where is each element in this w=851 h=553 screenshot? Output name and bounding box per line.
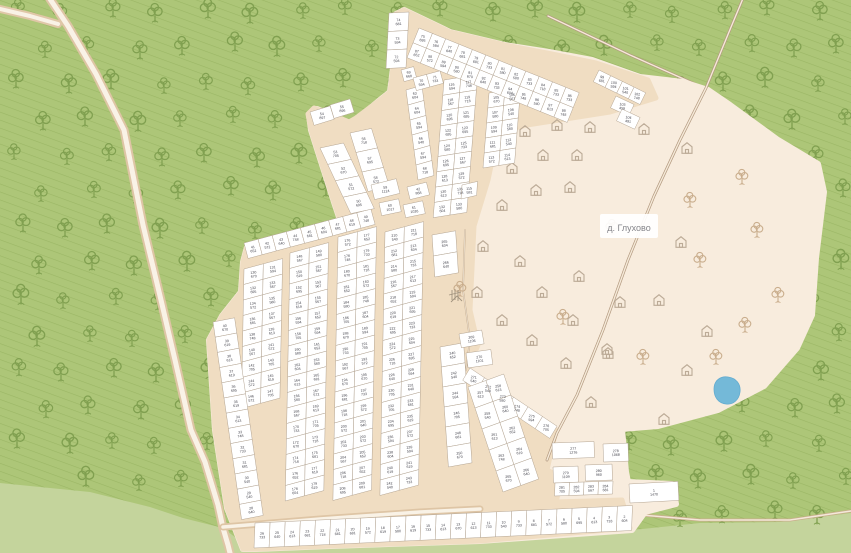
- svg-text:137567: 137567: [269, 312, 276, 320]
- svg-text:174718: 174718: [292, 456, 299, 464]
- svg-text:204567: 204567: [340, 455, 347, 463]
- svg-text:151567: 151567: [315, 265, 322, 273]
- svg-text:205652: 205652: [359, 450, 366, 458]
- svg-text:101540: 101540: [622, 86, 629, 94]
- svg-text:230705: 230705: [388, 388, 395, 396]
- svg-text:178604: 178604: [292, 487, 299, 495]
- svg-text:153567: 153567: [315, 280, 322, 288]
- svg-text:179733: 179733: [363, 249, 370, 257]
- svg-text:208695: 208695: [339, 486, 346, 494]
- svg-text:266640: 266640: [523, 468, 530, 476]
- svg-text:210540: 210540: [391, 233, 398, 241]
- svg-text:180670: 180670: [344, 269, 351, 277]
- svg-text:260640: 260640: [502, 405, 509, 413]
- svg-text:120695: 120695: [446, 113, 453, 121]
- svg-text:171705: 171705: [312, 420, 319, 428]
- svg-text:227695: 227695: [408, 352, 415, 360]
- svg-text:119718: 119718: [464, 95, 471, 103]
- svg-text:162604: 162604: [294, 363, 301, 371]
- svg-text:139613: 139613: [268, 327, 275, 335]
- svg-text:188670: 188670: [342, 331, 349, 339]
- svg-text:259540: 259540: [484, 412, 491, 420]
- svg-text:192567: 192567: [342, 362, 349, 370]
- svg-text:240619: 240619: [387, 466, 394, 474]
- svg-text:182652: 182652: [343, 285, 350, 293]
- svg-text:274748: 274748: [514, 404, 521, 412]
- svg-text:217613: 217613: [410, 275, 417, 283]
- svg-text:136681: 136681: [249, 317, 256, 325]
- svg-text:164613: 164613: [294, 378, 301, 386]
- svg-text:212681: 212681: [391, 249, 398, 257]
- svg-text:147705: 147705: [267, 389, 274, 397]
- svg-text:250670: 250670: [456, 451, 463, 459]
- svg-text:206718: 206718: [340, 471, 347, 479]
- svg-text:266640: 266640: [443, 261, 450, 269]
- svg-text:282594: 282594: [573, 485, 579, 493]
- svg-text:112540: 112540: [505, 138, 512, 146]
- svg-text:262652: 262652: [509, 426, 516, 434]
- svg-text:257613: 257613: [477, 391, 484, 399]
- svg-text:191705: 191705: [361, 342, 368, 350]
- svg-text:110580: 110580: [506, 123, 513, 131]
- svg-text:105670: 105670: [493, 95, 500, 103]
- svg-text:152695: 152695: [296, 285, 303, 293]
- svg-text:178748: 178748: [344, 254, 351, 262]
- svg-text:127567: 127567: [459, 156, 466, 164]
- svg-text:179619: 179619: [311, 482, 318, 490]
- svg-text:117748: 117748: [465, 80, 472, 88]
- svg-text:209681: 209681: [359, 481, 366, 489]
- svg-text:246705: 246705: [453, 411, 460, 419]
- svg-text:264619: 264619: [516, 447, 523, 455]
- svg-text:146572: 146572: [248, 394, 255, 402]
- svg-text:157652: 157652: [314, 311, 321, 319]
- svg-text:229594: 229594: [408, 368, 415, 376]
- svg-text:135580: 135580: [269, 296, 276, 304]
- svg-text:107580: 107580: [492, 110, 499, 118]
- svg-text:240652: 240652: [449, 351, 456, 359]
- svg-text:200572: 200572: [341, 424, 348, 432]
- svg-text:271540: 271540: [470, 375, 477, 383]
- svg-text:150619: 150619: [296, 270, 303, 278]
- svg-text:232705: 232705: [388, 404, 395, 412]
- svg-text:132695: 132695: [250, 286, 257, 294]
- svg-text:177619: 177619: [311, 466, 318, 474]
- svg-text:143705: 143705: [268, 358, 275, 366]
- svg-text:165681: 165681: [313, 373, 320, 381]
- svg-text:130613: 130613: [440, 190, 447, 198]
- svg-text:228640: 228640: [388, 373, 395, 381]
- svg-text:142705: 142705: [248, 363, 255, 371]
- svg-text:2791109: 2791109: [562, 471, 570, 479]
- svg-text:216567: 216567: [390, 280, 397, 288]
- svg-text:242540: 242540: [451, 371, 458, 379]
- svg-text:215733: 215733: [410, 259, 417, 267]
- svg-text:190733: 190733: [342, 347, 349, 355]
- svg-text:126695: 126695: [442, 159, 449, 167]
- svg-text:263748: 263748: [498, 454, 505, 462]
- svg-text:272540: 272540: [485, 385, 492, 393]
- svg-text:239594: 239594: [406, 445, 413, 453]
- svg-text:100594: 100594: [610, 81, 617, 89]
- svg-text:122695: 122695: [445, 128, 452, 136]
- svg-text:148567: 148567: [296, 254, 303, 262]
- svg-text:199572: 199572: [360, 404, 367, 412]
- svg-text:258613: 258613: [495, 384, 502, 392]
- svg-text:241619: 241619: [406, 461, 413, 469]
- svg-text:138748: 138748: [249, 332, 256, 340]
- svg-text:123695: 123695: [462, 126, 469, 134]
- svg-text:242540: 242540: [386, 481, 393, 489]
- svg-text:104491: 104491: [625, 115, 632, 123]
- svg-text:170733: 170733: [293, 425, 300, 433]
- svg-text:248681: 248681: [455, 431, 462, 439]
- svg-text:155567: 155567: [315, 296, 322, 304]
- svg-text:115581: 115581: [466, 186, 473, 194]
- svg-text:184580: 184580: [343, 300, 350, 308]
- svg-text:116594: 116594: [448, 83, 455, 91]
- svg-text:161652: 161652: [314, 342, 321, 350]
- svg-text:128613: 128613: [441, 174, 448, 182]
- svg-text:144572: 144572: [248, 379, 255, 387]
- svg-text:283567: 283567: [588, 485, 594, 493]
- svg-text:д. Глухово: д. Глухово: [607, 223, 650, 233]
- svg-text:198718: 198718: [341, 409, 348, 417]
- svg-text:244594: 244594: [452, 391, 459, 399]
- svg-text:159594: 159594: [314, 327, 321, 335]
- svg-text:103459: 103459: [619, 102, 626, 110]
- svg-text:276705: 276705: [543, 424, 550, 432]
- svg-text:154619: 154619: [295, 301, 302, 309]
- svg-text:173718: 173718: [312, 435, 319, 443]
- svg-text:193572: 193572: [361, 357, 368, 365]
- svg-text:233681: 233681: [407, 399, 414, 407]
- svg-text:133567: 133567: [269, 281, 276, 289]
- svg-text:185748: 185748: [362, 295, 369, 303]
- svg-text:222695: 222695: [389, 326, 396, 334]
- svg-text:176572: 176572: [344, 238, 351, 246]
- svg-text:176652: 176652: [292, 471, 299, 479]
- svg-text:121695: 121695: [463, 111, 470, 119]
- svg-text:177652: 177652: [363, 233, 370, 241]
- svg-text:219594: 219594: [409, 290, 416, 298]
- svg-text:131594: 131594: [269, 265, 276, 273]
- svg-text:243733: 243733: [406, 476, 413, 484]
- svg-text:203572: 203572: [360, 435, 367, 443]
- svg-text:133580: 133580: [456, 202, 463, 210]
- svg-text:169613: 169613: [312, 404, 319, 412]
- svg-text:2771276: 2771276: [569, 447, 577, 455]
- svg-text:202733: 202733: [340, 440, 347, 448]
- svg-text:187604: 187604: [362, 311, 369, 319]
- svg-text:234695: 234695: [388, 419, 395, 427]
- svg-text:158705: 158705: [295, 332, 302, 340]
- svg-text:281705: 281705: [559, 486, 565, 494]
- svg-text:273580: 273580: [499, 395, 506, 403]
- svg-text:226718: 226718: [389, 357, 396, 365]
- svg-text:186705: 186705: [343, 316, 350, 324]
- svg-text:141572: 141572: [268, 343, 275, 351]
- svg-text:114613: 114613: [504, 153, 511, 161]
- svg-text:183572: 183572: [363, 280, 370, 288]
- svg-text:102748: 102748: [634, 92, 641, 100]
- svg-text:118567: 118567: [447, 98, 454, 106]
- svg-text:125733: 125733: [460, 141, 467, 149]
- svg-text:109594: 109594: [491, 125, 498, 133]
- svg-text:195670: 195670: [361, 373, 368, 381]
- svg-text:237572: 237572: [407, 430, 414, 438]
- svg-text:2781068: 2781068: [612, 449, 620, 457]
- svg-text:223733: 223733: [409, 321, 416, 329]
- svg-text:201640: 201640: [360, 419, 367, 427]
- svg-text:265670: 265670: [505, 475, 512, 483]
- svg-text:280960: 280960: [596, 469, 602, 477]
- svg-text:218652: 218652: [390, 295, 397, 303]
- svg-text:168567: 168567: [293, 409, 300, 417]
- svg-text:235619: 235619: [407, 414, 414, 422]
- svg-text:189594: 189594: [362, 326, 369, 334]
- svg-text:214580: 214580: [391, 264, 398, 272]
- svg-text:175681: 175681: [312, 451, 319, 459]
- svg-text:160580: 160580: [294, 347, 301, 355]
- svg-text:181718: 181718: [363, 264, 370, 272]
- svg-text:236594: 236594: [387, 435, 394, 443]
- svg-text:163580: 163580: [313, 358, 320, 366]
- svg-text:225604: 225604: [408, 337, 415, 345]
- svg-text:145619: 145619: [267, 374, 274, 382]
- svg-text:221695: 221695: [409, 306, 416, 314]
- svg-text:211718: 211718: [410, 228, 417, 236]
- svg-text:194670: 194670: [341, 378, 348, 386]
- svg-text:156594: 156594: [295, 316, 302, 324]
- svg-text:224572: 224572: [389, 342, 396, 350]
- svg-text:149580: 149580: [315, 249, 322, 257]
- svg-text:213604: 213604: [410, 244, 417, 252]
- svg-text:166580: 166580: [293, 394, 300, 402]
- svg-text:265604: 265604: [441, 240, 448, 248]
- svg-text:220619: 220619: [390, 311, 397, 319]
- svg-text:134572: 134572: [250, 301, 257, 309]
- svg-text:207652: 207652: [359, 466, 366, 474]
- svg-text:197733: 197733: [360, 388, 367, 396]
- svg-text:284681: 284681: [602, 484, 608, 492]
- svg-text:167572: 167572: [313, 389, 320, 397]
- svg-text:132604: 132604: [439, 205, 446, 213]
- svg-text:131718: 131718: [457, 187, 464, 195]
- svg-text:130670: 130670: [250, 270, 257, 278]
- svg-text:140567: 140567: [249, 348, 256, 356]
- svg-text:231640: 231640: [407, 383, 414, 391]
- svg-text:275594: 275594: [528, 414, 535, 422]
- svg-text:172670: 172670: [293, 440, 300, 448]
- svg-text:238604: 238604: [387, 450, 394, 458]
- svg-text:113572: 113572: [488, 155, 495, 163]
- svg-text:108540: 108540: [508, 108, 515, 116]
- svg-text:196681: 196681: [341, 393, 348, 401]
- svg-text:124580: 124580: [444, 144, 451, 152]
- svg-text:261613: 261613: [491, 433, 498, 441]
- svg-text:129572: 129572: [458, 172, 465, 180]
- svg-text:111681: 111681: [489, 140, 496, 148]
